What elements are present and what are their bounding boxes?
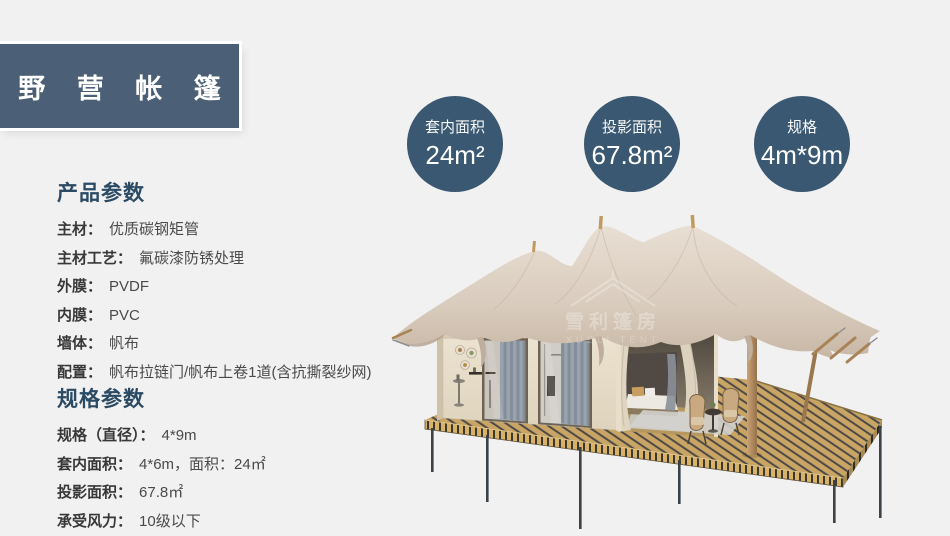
- param-value: 67.8㎡: [139, 484, 183, 501]
- section-heading: 规格参数: [57, 383, 266, 413]
- product-params-section: 产品参数 主材：优质碳钢矩管 主材工艺：氟碳漆防锈处理 外膜：PVDF 内膜：P…: [57, 177, 372, 387]
- badge-value: 67.8m²: [592, 141, 673, 169]
- param-label: 投影面积：: [57, 484, 132, 501]
- param-row: 主材：优质碳钢矩管: [57, 216, 372, 245]
- param-label: 主材工艺：: [57, 250, 132, 267]
- param-label: 承受风力：: [57, 513, 132, 530]
- param-value: PVDF: [109, 278, 149, 295]
- title-box: 野 营 帐 篷: [0, 44, 239, 128]
- param-label: 套内面积：: [57, 456, 132, 473]
- window-right: [538, 339, 592, 429]
- param-row: 规格（直径）：4*9m: [57, 422, 266, 451]
- watermark-name: 雪利篷房: [565, 310, 661, 333]
- param-value: 帆布: [109, 335, 139, 352]
- param-value: PVC: [109, 307, 140, 324]
- watermark-name-en: XUELI TENT: [566, 335, 661, 346]
- param-row: 投影面积：67.8㎡: [57, 479, 266, 508]
- badge-label: 套内面积: [425, 119, 485, 137]
- badge-label: 规格: [787, 119, 817, 137]
- param-label: 规格（直径）：: [57, 427, 155, 444]
- param-row: 外膜：PVDF: [57, 273, 372, 302]
- badge-projection-area: 投影面积 67.8m²: [584, 96, 680, 192]
- badge-value: 24m²: [425, 141, 484, 169]
- param-label: 内膜：: [57, 307, 102, 324]
- page-root: { "title": { "text": "野 营 帐 篷" }, "badge…: [0, 0, 950, 534]
- param-value: 优质碳钢矩管: [109, 221, 199, 238]
- section-heading: 产品参数: [57, 177, 372, 207]
- param-value: 氟碳漆防锈处理: [139, 250, 244, 267]
- param-label: 主材：: [57, 221, 102, 238]
- param-value: 10级以下: [139, 513, 201, 530]
- param-value: 帆布拉链门/帆布上卷1道(含抗撕裂纱网): [109, 364, 372, 381]
- param-value: 4*9m: [162, 427, 197, 444]
- badge-interior-area: 套内面积 24m²: [407, 96, 503, 192]
- badge-label: 投影面积: [602, 119, 662, 137]
- badge-size: 规格 4m*9m: [754, 96, 850, 192]
- param-row: 套内面积：4*6m，面积：24㎡: [57, 451, 266, 480]
- param-row: 主材工艺：氟碳漆防锈处理: [57, 245, 372, 274]
- param-value: 4*6m，面积：24㎡: [139, 456, 266, 473]
- param-row: 墙体：帆布: [57, 330, 372, 359]
- param-row: 承受风力：10级以下: [57, 508, 266, 536]
- badge-value: 4m*9m: [761, 141, 843, 169]
- window-left: [482, 338, 528, 424]
- param-label: 墙体：: [57, 335, 102, 352]
- tent-render: 雪利篷房 XUELI TENT: [385, 204, 950, 534]
- param-label: 配置：: [57, 364, 102, 381]
- param-label: 外膜：: [57, 278, 102, 295]
- param-row: 内膜：PVC: [57, 302, 372, 331]
- page-title: 野 营 帐 篷: [6, 67, 233, 106]
- spec-params-section: 规格参数 规格（直径）：4*9m 套内面积：4*6m，面积：24㎡ 投影面积：6…: [57, 383, 266, 536]
